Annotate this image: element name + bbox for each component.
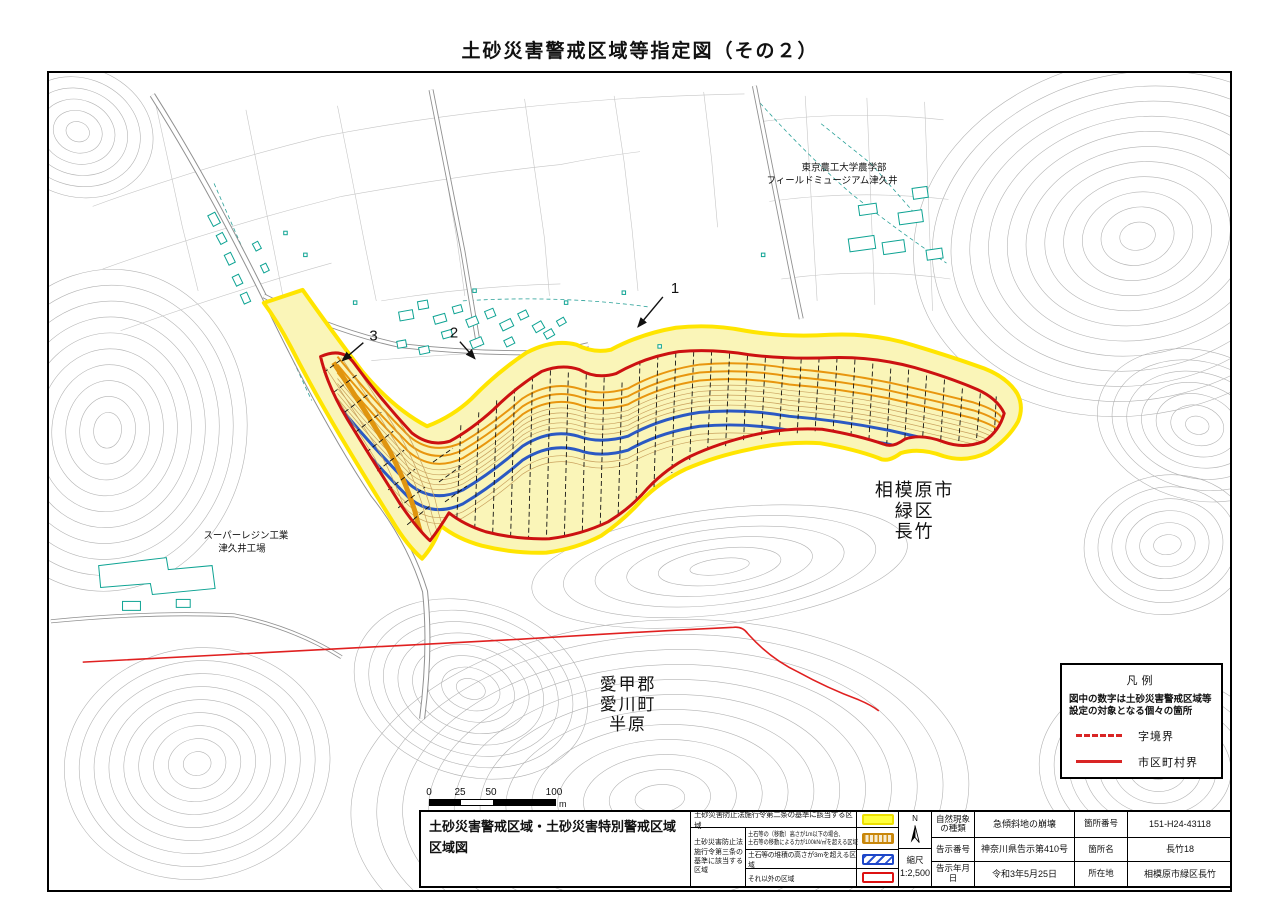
field-value: 神奈川県告示第410号 (974, 837, 1074, 862)
zone-row1-label: 土砂災害防止法施行令第二条の基準に該当する区域 (691, 812, 856, 827)
zone-legend-table: 土砂災害防止法施行令第二条の基準に該当する区域 土砂災害防止法 施行令第三条の … (690, 812, 898, 886)
north-scale-column: N 縮尺 1:2,500 (898, 812, 931, 886)
solid-red-line-sample (1076, 760, 1122, 763)
zone-group-label: 土砂災害防止法 施行令第三条の 基準に該当する 区域 (691, 827, 745, 886)
aikawa-label-line2: 愛川町 (600, 695, 657, 714)
field-value: 急傾斜地の崩壊 (974, 812, 1074, 837)
sagamihara-label-line3: 長竹 (895, 522, 935, 542)
parcel-boundaries (93, 92, 951, 361)
field-value: 相模原市緑区長竹 (1127, 861, 1232, 886)
legend-title: 凡例 (1062, 672, 1221, 688)
zone-row3-label: 土石等の堆積の高さが3mを超える区域 (745, 849, 856, 868)
legend-note-line2: 設定の対象となる個々の箇所 (1069, 706, 1215, 718)
map-canvas: 1 2 3 東京農工大学農学部 フィールドミュージアム津久井 スーパーレジン工業… (49, 73, 1230, 890)
field-value: 長竹18 (1127, 837, 1232, 862)
info-table: 土砂災害警戒区域・土砂災害特別警戒区域 区域図 土砂災害防止法施行令第二条の基準… (419, 810, 1232, 888)
page-title: 土砂災害警戒区域等指定図（その２） (0, 36, 1280, 63)
scale-bar-rule (429, 799, 556, 806)
scale-value: 1:2,500 (900, 867, 930, 880)
marker-2: 2 (450, 325, 458, 342)
sagamihara-label-line2: 緑区 (895, 501, 935, 521)
scale-bar-ticks: 0 25 50 100 (425, 787, 625, 799)
deposit-blue-swatch (862, 854, 894, 865)
north-label: N (912, 815, 918, 823)
zone-row4-swatch-cell (856, 868, 898, 886)
legend-item-municipal-boundary: 市区町村界 (1076, 754, 1211, 770)
university-label-line2: フィールドミュージアム津久井 (767, 174, 898, 186)
zone-row1-swatch-cell (856, 812, 898, 827)
field-value: 151-H24-43118 (1127, 812, 1232, 837)
scale-bar: 0 25 50 100 m (425, 787, 625, 806)
university-label-line1: 東京農工大学農学部 (802, 162, 887, 174)
aikawa-label-line3: 半原 (609, 715, 647, 734)
legend-item-aza-boundary: 字境界 (1076, 728, 1211, 744)
scale-tick-25: 25 (454, 787, 465, 798)
field-label: 告示番号 (932, 837, 974, 862)
north-arrow: N (899, 812, 931, 848)
scale-bar-unit: m (559, 799, 567, 809)
field-label: 自然現象の種類 (932, 812, 974, 837)
field-value: 令和3年5月25日 (974, 861, 1074, 886)
zone-row2-label: 土石等の（移動）高さが1m以下の場合、 土石等の移動による力が100kN/㎡を超… (745, 827, 856, 849)
zone-row3-swatch-cell (856, 849, 898, 868)
scale-cell: 縮尺 1:2,500 (899, 848, 931, 886)
north-arrow-icon (909, 823, 921, 845)
zone-row2-swatch-cell (856, 827, 898, 849)
sediment-hazard-map-document: { "title": "土砂災害警戒区域等指定図（その２）", "map": {… (0, 0, 1280, 905)
zone-row4-label: それ以外の区域 (745, 868, 856, 886)
scale-tick-0: 0 (426, 787, 432, 798)
aikawa-label-line1: 愛甲郡 (600, 675, 657, 694)
scale-tick-100: 100 (546, 787, 563, 798)
scale-label: 縮尺 (906, 855, 923, 867)
warning-area-swatch (862, 814, 894, 825)
field-label: 箇所番号 (1074, 812, 1127, 837)
legend-box: 凡例 図中の数字は土砂災害警戒区域等 設定の対象となる個々の箇所 字境界 市区町… (1060, 663, 1223, 779)
marker-1: 1 (671, 280, 679, 297)
sagamihara-label-line1: 相模原市 (875, 480, 955, 500)
factory-label-line2: 津久井工場 (218, 543, 266, 555)
marker-3: 3 (369, 328, 377, 345)
scale-tick-50: 50 (485, 787, 496, 798)
field-label: 告示年月日 (932, 861, 974, 886)
special-orange-swatch (862, 833, 894, 844)
dashed-red-line-sample (1076, 734, 1122, 737)
legend-note-line1: 図中の数字は土砂災害警戒区域等 (1069, 694, 1215, 706)
factory-label-line1: スーパーレジン工業 (204, 530, 289, 542)
field-label: 所在地 (1074, 861, 1127, 886)
map-frame: 1 2 3 東京農工大学農学部 フィールドミュージアム津久井 スーパーレジン工業… (47, 71, 1232, 892)
map-sheet-title: 土砂災害警戒区域・土砂災害特別警戒区域 区域図 (421, 812, 690, 886)
site-info-table: 自然現象の種類 急傾斜地の崩壊 箇所番号 151-H24-43118 告示番号 … (931, 812, 1232, 886)
other-area-swatch (862, 872, 894, 883)
field-label: 箇所名 (1074, 837, 1127, 862)
